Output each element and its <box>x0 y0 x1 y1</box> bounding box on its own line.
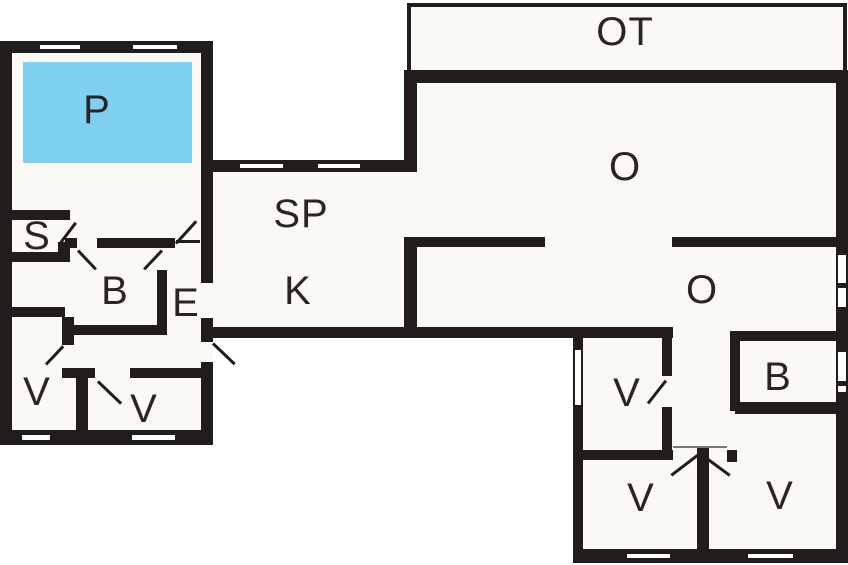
wall <box>735 402 848 414</box>
window <box>836 352 848 392</box>
wall <box>836 70 848 255</box>
wall <box>662 338 672 376</box>
wall <box>672 237 836 247</box>
room-label-living-large: O <box>609 147 641 187</box>
floor-right-upper <box>404 70 848 338</box>
room-label-room-left-2: V <box>130 389 158 429</box>
wall <box>730 331 740 411</box>
terrace-wall <box>407 3 411 70</box>
wall <box>97 238 175 248</box>
wall <box>201 362 213 445</box>
wall <box>662 407 672 450</box>
floor-right-lower <box>573 327 848 563</box>
terrace-wall <box>843 3 847 70</box>
window <box>133 43 177 51</box>
room-label-kitchen: K <box>284 271 312 311</box>
room-label-bath-right: B <box>764 357 792 397</box>
wall <box>836 392 848 563</box>
wall <box>62 368 95 378</box>
wall <box>404 247 417 327</box>
wall <box>404 70 848 83</box>
wall <box>65 325 167 335</box>
room-label-living-small: O <box>686 270 718 310</box>
window <box>627 552 670 560</box>
wall <box>836 307 848 352</box>
window <box>836 255 848 307</box>
room-label-dining: SP <box>273 194 328 234</box>
wall <box>404 237 545 247</box>
room-label-pool: P <box>83 90 111 130</box>
window <box>40 43 80 51</box>
room-label-bath-left: B <box>101 271 129 311</box>
wall <box>573 338 583 350</box>
wall <box>130 368 201 378</box>
door-threshold-line <box>673 446 727 448</box>
wall <box>76 378 88 430</box>
wall <box>0 41 213 53</box>
wall <box>157 270 167 325</box>
room-label-entry: E <box>172 283 200 323</box>
wall <box>0 41 12 445</box>
room-label-terrace: OT <box>596 12 654 52</box>
wall <box>583 327 673 338</box>
room-label-room-right-1: V <box>613 373 641 413</box>
window <box>240 162 283 170</box>
wall <box>0 307 65 317</box>
floor-plan: P S B E V V SP K OT O O V B V V <box>0 0 848 565</box>
room-label-room-left-1: V <box>23 372 51 412</box>
wall <box>573 405 583 553</box>
window-mullion <box>836 381 848 386</box>
wall <box>404 70 417 170</box>
window <box>318 162 360 170</box>
wall <box>201 327 585 338</box>
wall <box>201 160 417 172</box>
door-leaf <box>176 240 200 243</box>
window <box>132 433 175 442</box>
window <box>748 552 793 560</box>
wall <box>697 448 709 549</box>
room-label-storage: S <box>23 216 51 256</box>
wall <box>583 450 673 460</box>
wall <box>727 450 737 462</box>
door-swing-line <box>212 342 236 365</box>
wall <box>65 238 77 248</box>
wall <box>730 331 838 341</box>
window-mullion <box>836 283 848 288</box>
room-label-room-right-3: V <box>766 476 794 516</box>
window <box>573 350 583 405</box>
room-label-room-right-2: V <box>627 478 655 518</box>
window <box>22 433 50 442</box>
terrace-wall <box>407 3 847 7</box>
wall <box>573 549 848 563</box>
